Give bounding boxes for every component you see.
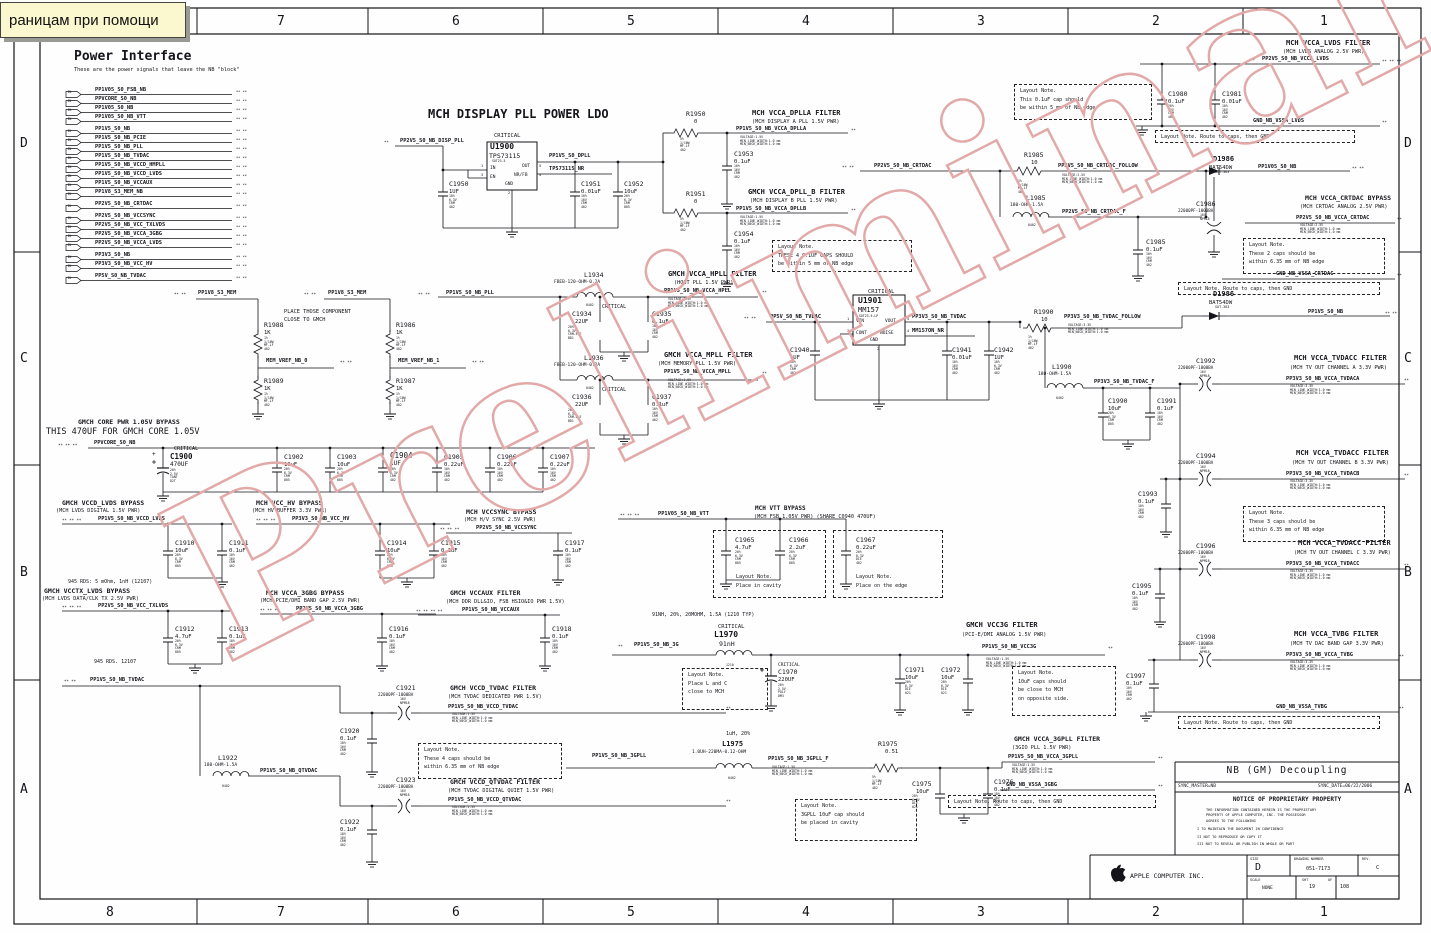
schematic-text: 16V NPM18 (400, 698, 410, 705)
schematic-text: THIS 470UF FOR GMCH CORE 1.05V (46, 428, 200, 438)
schematic-text: (HOST PLL 1.5V PWR) (674, 281, 733, 287)
schematic-text: C1950 (449, 181, 469, 188)
tooltip-overlay: раницам при помощи (0, 2, 186, 38)
sheet-refs: ** ** (236, 156, 247, 160)
schematic-text: PP3V3_S0_NB_VCCA_TVDACC (1286, 562, 1359, 568)
schematic-text: SOT23-5 (492, 160, 505, 164)
schematic-text: C1937 (652, 394, 672, 401)
power-in-tag: IN (68, 184, 72, 188)
schematic-text: C1934 (572, 311, 592, 318)
schematic-text: L1936 (584, 355, 604, 362)
power-net-label: PP2V5_S0_NB_CRTDAC (95, 202, 152, 208)
schematic-text: 20% 10V CRM 402 (1168, 105, 1174, 119)
schematic-text: MCH VCCA_CRTDAC BYPASS (1305, 195, 1391, 202)
schematic-text: 10% 16V CRM 402 (652, 325, 658, 339)
schematic-text: GMCH VCCD_LVDS BYPASS (62, 500, 144, 507)
schematic-text: 20% 6.3V CRM 805 (175, 554, 183, 568)
schematic-text: CRITICAL (868, 289, 895, 295)
schematic-text: TPS73115_NR (549, 167, 584, 173)
schematic-text: ** (1397, 218, 1402, 222)
schematic-text: ** ** ** (620, 514, 639, 518)
zone-col-label: 6 (452, 905, 460, 920)
schematic-text: U1901 (858, 297, 882, 306)
schematic-text: 0 (694, 199, 697, 205)
schematic-text: 5% 1/16W MF-LF 402 (680, 218, 690, 232)
schematic-text: ** (1250, 59, 1255, 63)
zone-col-label: 4 (802, 14, 810, 29)
layout-note: Layout Note. Route to caps, then GND (1178, 716, 1380, 729)
schematic-text: VOLTAGE:3.3V MIN_LINE_WIDTH:1.0 mm MIN_N… (1290, 661, 1330, 672)
schematic-text: 10% 16V CRM 402 (340, 833, 346, 847)
schematic-text: C1990 (1108, 398, 1128, 405)
layout-note: Layout Note.THESE 4 0.1UF CAPS SHOULDbe … (772, 240, 912, 272)
schematic-text: PP2V5_S0_NB_VCC_TXLVDS (98, 604, 168, 610)
schematic-text: VOLTAGE:1.5V MIN_LINE_WIDTH:1.0 mm MIN_N… (1012, 764, 1052, 775)
schematic-text: ** (1158, 757, 1163, 761)
schematic-text: 0 (694, 119, 697, 125)
schematic-text: C1953 (734, 151, 754, 158)
schematic-text: PP1V5_S0_NB_VCCD_QTVDAC (448, 798, 521, 804)
schematic-text: R1951 (686, 191, 706, 198)
schematic-text: L1922 (218, 755, 238, 762)
schematic-text: C1954 (734, 231, 754, 238)
schematic-text: VOLTAGE:3.3V MIN_LINE_WIDTH:1.0 mm MIN_N… (1290, 570, 1330, 581)
schematic-text: VOLTAGE:1.5V MIN_LINE_WIDTH:1.0 mm MIN_N… (740, 216, 780, 227)
schematic-text: VOLTAGE:2.5V MIN_LINE_WIDTH:1.0 mm MIN_N… (1062, 174, 1102, 185)
schematic-text: 91NH, 20%, 20MOHM, 1.5A (1210 TYP) (652, 613, 754, 619)
schematic-text: (MCH DISPLAY A PLL 1.5V PWR) (752, 120, 839, 126)
schematic-text: PP1V5_S0_NB_VCCA_DPLLB (736, 207, 806, 213)
size-value: D (1255, 862, 1261, 873)
schematic-text: C1917 (565, 540, 585, 547)
schematic-text: 2 (877, 347, 879, 351)
schematic-text: (MCH CRTDAC ANALOG 2.5V PWR) (1300, 205, 1387, 211)
schematic-text: ** ** ** (1382, 60, 1401, 64)
schematic-text: 10% 16V CRM 402 (1146, 253, 1152, 267)
schematic-text: 1% 1/16W MF-LF 402 (1028, 336, 1038, 350)
schematic-text: 10% 16V CRM 402 (734, 165, 740, 179)
schematic-text: VOLTAGE:1.5V MIN_LINE_WIDTH:1.0 mm MIN_N… (452, 713, 492, 724)
rev-label: REV. (1362, 857, 1370, 861)
schematic-text: PP2V5_S0_NB_VCCA_CRTDAC (1296, 216, 1369, 222)
power-net-label: PP2V5_S0_NB_VCC_TXLVDS (95, 223, 165, 229)
notice-line: PROPERTY OF APPLE COMPUTER, INC. THE POS… (1206, 813, 1316, 818)
schematic-text: C1907 (550, 454, 570, 461)
schematic-text: VIN (856, 319, 864, 324)
zone-row-label: A (1404, 782, 1412, 797)
power-net-label: PP1V05_S0_NB (95, 106, 133, 112)
schematic-text: 20% 6.3V CRM 805 (284, 468, 292, 482)
schematic-text: (MCH LVDS DATA/CLK TX 2.5V PWR) (42, 597, 139, 603)
schematic-text: FBEB-120-OHM-0.2A (554, 280, 600, 285)
schematic-text: L1934 (584, 272, 604, 279)
schematic-text: GMCH VCCA_DPLL_B FILTER (748, 189, 845, 197)
power-net-label: PP3V3_S0_NB (95, 253, 130, 259)
schematic-text: PP2V5_S0_NB_CRTDAC_FOLLOW (1058, 164, 1138, 170)
layout-note (833, 530, 943, 598)
layout-note (713, 530, 826, 598)
schematic-text: PP1V5_S0_NB_VCCA_HPLL (664, 289, 731, 295)
schematic-text: VOLTAGE:1.5V MIN_LINE_WIDTH:1.0 mm MIN_N… (668, 379, 708, 390)
sheet-refs: ** ** (236, 264, 247, 268)
schematic-text: PLACE THOSE COMPONENT (284, 310, 351, 316)
schematic-text: (MCH MEMORY PLL 1.5V PWR) (658, 362, 736, 368)
schematic-text: 16V NPM18 (1200, 647, 1210, 654)
schematic-text: C1970 (778, 669, 798, 676)
power-in-tag: IN (68, 139, 72, 143)
zone-col-label: 5 (627, 14, 635, 29)
schematic-text: C1942 (994, 347, 1014, 354)
power-net-label: PP1V5_S0_NB_TVDAC (95, 154, 149, 160)
schematic-text: 180-OHM-1.5A (204, 763, 237, 768)
schematic-text: 22000PF-1000BA (1178, 366, 1213, 371)
schematic-text: 16V NPM18 (1200, 371, 1210, 378)
schematic-text: C1910 (175, 540, 195, 547)
schematic-text: C1922 (340, 819, 360, 826)
schematic-text: C1902 (284, 454, 304, 461)
schematic-text: (MCH TVDAC DIGITAL QUIET 1.5V PWR) (448, 789, 554, 795)
power-in-tag: IN (68, 175, 72, 179)
schematic-text: ** ** (1352, 167, 1364, 171)
power-in-tag: IN (68, 109, 72, 113)
schematic-text: ** ** ** (256, 519, 275, 523)
schematic-text: GMCH VCCA_HPLL FILTER (668, 271, 757, 279)
schematic-text: C1912 (175, 626, 195, 633)
schematic-text: ** ** (340, 361, 352, 365)
schematic-text: R1988 (264, 322, 284, 329)
schematic-text: 1uH, 20% (726, 732, 750, 738)
zone-col-label: 2 (1152, 905, 1160, 920)
layout-note: Layout Note.These 4 caps should bewithin… (418, 743, 562, 779)
schematic-text: 16V NPM18 (1200, 466, 1210, 473)
power-in-tag: IN (68, 217, 72, 221)
schematic-text: NR/FB (514, 173, 528, 178)
schematic-text: ** (1399, 655, 1404, 659)
schematic-text: CLOSE TO GMCH (284, 318, 325, 324)
schematic-text: ** ** (472, 361, 484, 365)
schematic-text: (3GIO PLL 1.5V PWR) (1012, 746, 1071, 752)
schematic-text: FBEB-120-OHM-0.2A (554, 363, 600, 368)
schematic-text: 1% 1/16W MF-LF 402 (396, 337, 406, 351)
schematic-text: 180-OHM-1.5A (1038, 372, 1071, 377)
schematic-text: 0402 (222, 785, 230, 789)
schematic-text: (MCH HV BUFFER 3.3V PWR) (252, 509, 327, 515)
schematic-text: ** (1404, 474, 1409, 478)
layout-note: Layout Note.These 2 caps should bewithin… (1243, 238, 1385, 274)
sheet-refs: ** ** (236, 108, 247, 112)
schematic-text: 10% 16V CRM 402 (389, 640, 395, 654)
power-net-label: PP3V3_S0_NB_VCC_HV (95, 262, 152, 268)
schematic-text: PP1V5_S0_NB_3GPLL_F (768, 757, 829, 763)
schematic-text: C1985 (1146, 239, 1166, 246)
schematic-text: Power Interface (74, 50, 191, 65)
schematic-text: PP2V5_S0_NB_DISP_PLL (400, 139, 464, 145)
schematic-text: GND_NB_VSSA_LVDS (1253, 119, 1304, 125)
schematic-text: 10% 16V CRM 402 (340, 742, 346, 756)
power-in-tag: IN (68, 235, 72, 239)
schematic-text: ** ** ** (62, 519, 81, 523)
schematic-text: U1900 (490, 143, 514, 152)
schematic-text: (MCH TVDAC DEDICATED PWR 1.5V) (448, 695, 542, 701)
power-net-label: PP1V05_S0_NB_VTT (95, 115, 146, 121)
layout-note: Layout Note. Route to caps, then GND (1178, 282, 1380, 295)
schematic-text: GMCH VCCTX_LVDS BYPASS (44, 588, 130, 595)
layout-note: Layout Note.Place L and Cclose to MCH (682, 668, 768, 710)
schematic-text: VOLTAGE:1.5V MIN_LINE_WIDTH:1.0 mm MIN_N… (452, 806, 492, 817)
schematic-text: MCH VCCSYNC BYPASS (466, 509, 536, 516)
size-label: SIZE (1250, 857, 1258, 861)
schematic-text: L1990 (1052, 364, 1072, 371)
layout-note: Layout Note.This 0.1uF cap shouldbe with… (1014, 84, 1152, 120)
zone-row-label: D (1404, 136, 1412, 151)
schematic-text: 4 (539, 173, 541, 177)
schematic-text: PP1V5_S0_NB_3G (634, 643, 679, 649)
power-in-tag: IN (68, 91, 72, 95)
schematic-text: 1% 1/16W MF-LF 402 (396, 393, 406, 407)
schematic-text: C1916 (389, 626, 409, 633)
schematic-text: R1986 (396, 322, 416, 329)
sheet-refs: ** ** (236, 255, 247, 259)
layout-note: Layout Note.3GPLL 10uF cap shouldbe plac… (795, 799, 917, 841)
schematic-text: + (152, 452, 156, 459)
zone-col-label: 8 (106, 905, 114, 920)
schematic-text: ** (726, 800, 731, 804)
schematic-text: C1911 (229, 540, 249, 547)
power-net-label: PP1V8_S3_MEM_NB (95, 190, 143, 196)
schematic-text: ** ** (842, 166, 854, 170)
schematic-text: PP1V5_S0_NB (1308, 310, 1343, 316)
schematic-text: ** ** ** (440, 528, 459, 532)
schematic-text: C1975 (912, 781, 932, 788)
schematic-text: 10% 16V CRM 402 (581, 195, 587, 209)
schematic-text: C1997 (1126, 673, 1146, 680)
schematic-text: ** ** (304, 293, 316, 297)
scale-label: SCALE (1250, 878, 1261, 882)
zone-col-label: 1 (1320, 14, 1328, 29)
schematic-text: PP2V5_S0_NB_CRTDAC (874, 164, 931, 170)
schematic-text: 22000PF-1000BA (1178, 551, 1213, 556)
schematic-text: GMCH CORE PWR 1.05V BYPASS (78, 419, 180, 426)
apple-logo-icon (1106, 864, 1126, 888)
schematic-text: MCH VCCA_TVDACC FILTER (1294, 355, 1387, 363)
schematic-text: PP2V5_S0_NB_VCCA_LVDS (1262, 57, 1329, 63)
zone-col-label: 3 (977, 905, 985, 920)
schematic-text: (MCH H/V SYNC 2.5V PWR) (464, 518, 536, 524)
schematic-text: ** (762, 291, 767, 295)
schematic-text: C1918 (552, 626, 572, 633)
zone-col-label: 2 (1152, 14, 1160, 29)
schematic-text: ** ** (174, 293, 186, 297)
schematic-text: 945 RDS. 12107 (94, 660, 136, 666)
schematic-text: MEM_VREF_NB_1 (398, 359, 439, 365)
schematic-text: ** (851, 129, 856, 133)
schematic-text: ** (1108, 647, 1113, 651)
schematic-text: 10% 16V CRM 402 (1138, 505, 1144, 519)
sheet-refs: ** ** (236, 192, 247, 196)
schematic-text: 1 (481, 164, 483, 168)
power-in-tag: IN (68, 130, 72, 134)
schematic-text: 10% 16V CRM 402 (550, 468, 556, 482)
dwg-label: DRAWING NUMBER (1294, 857, 1324, 861)
schematic-text: 5% 1/10W MF-LF 402 (872, 776, 882, 790)
zone-col-label: 3 (977, 14, 985, 29)
schematic-text: SOT-363 (1215, 171, 1229, 175)
sheet-refs: ** ** (236, 183, 247, 187)
schematic-text: ** (1404, 564, 1409, 568)
schematic-text: 3 (481, 173, 483, 177)
schematic-text: PP3V3_S0_NB_TVDAC_F (1094, 380, 1155, 386)
schematic-text: ** ** ** ** (416, 610, 443, 614)
power-in-tag: IN (68, 244, 72, 248)
schematic-text: These are the power signals that leave t… (74, 68, 240, 74)
schematic-text: (MCH PCIE/DMI BAND GAP 2.5V PWR) (260, 599, 360, 605)
schematic-text: R1950 (686, 111, 706, 118)
scale-value: NONE (1262, 886, 1273, 891)
schematic-text: 1 (847, 317, 849, 321)
power-net-label: PP1V5_S0_NB_PCIE (95, 136, 146, 142)
power-net-label: PP2V5_S0_NB_VCCSYNC (95, 214, 156, 220)
schematic-text: PP1V5_S0_NB_VCCD_LVDS (98, 517, 165, 523)
schematic-text: MCH DISPLAY PLL POWER LDO (428, 108, 609, 121)
power-in-tag: IN (68, 256, 72, 260)
sheet-refs: ** ** (236, 147, 247, 151)
schematic-text: 20% 6.3V CRM 805 (175, 640, 183, 654)
schematic-text: VOLTAGE:3.3V MIN_LINE_WIDTH:1.0 mm MIN_N… (1068, 324, 1108, 335)
schematic-text: PP3V3_S0_NB_VCCA_TVBG (1286, 653, 1353, 659)
schematic-text: ** (1397, 274, 1402, 278)
schematic-text: 20% 6.3V CRM 805 (1108, 412, 1116, 426)
power-in-tag: IN (68, 277, 72, 281)
schematic-text: 22000PF-1000BA (1178, 642, 1213, 647)
sheet-refs: ** ** (236, 216, 247, 220)
schematic-text: MM157ON_NR (912, 329, 944, 335)
schematic-text: CRITICAL (494, 133, 521, 139)
schematic-text: 1% 1/16W MF-LF 402 (1018, 180, 1028, 194)
of-label: OF (1328, 878, 1332, 882)
schematic-text: 16V NPM18 (1200, 556, 1210, 563)
schematic-text: PP1V5_S0_DPLL (549, 154, 590, 160)
schematic-text: PP1V8_S3_MEM (198, 291, 236, 297)
schematic-text: C1995 (1132, 583, 1152, 590)
power-in-tag: IN (68, 100, 72, 104)
schematic-text: ** (1158, 785, 1163, 789)
schematic-text: 10% 16V CRM 402 (229, 640, 235, 654)
schematic-text: 16V NPM18 (400, 790, 410, 797)
schematic-text: VOLTAGE:3.3V MIN_LINE_WIDTH:1.0 mm MIN_N… (1290, 480, 1330, 491)
power-net-label: PP1V5_S0_NB_VCCD_LVDS (95, 172, 162, 178)
schematic-text: (MCH TV OUT CHANNEL B 3.3V PWR) (1292, 461, 1389, 467)
schematic-text: 1% 1/16W MF-LF 402 (264, 337, 274, 351)
schematic-text: PP2V5_S0_NB_CRTDAC_F (1062, 210, 1126, 216)
schematic-text: (MCH TV DAC BAND GAP 3.3V PWR) (1290, 642, 1384, 648)
power-net-label: PP2V5_S0_NB_VCCA_3GBG (95, 232, 162, 238)
schematic-text: ** ** ** (260, 609, 279, 613)
schematic-text: OUT (522, 164, 530, 169)
schematic-text: GMCH VCCAUX FILTER (450, 590, 520, 597)
schematic-text: L1975 (722, 741, 743, 749)
schematic-text: PP1V5_S0_NB_VCCA_MPLL (664, 370, 731, 376)
schematic-text: PP1V5_S0_NB_3GPLL (592, 754, 646, 760)
schematic-text: C1952 (624, 181, 644, 188)
schematic-text: 10% 16V CRM 402 (552, 640, 558, 654)
schematic-text: C1915 (441, 540, 461, 547)
schematic-text: VOLTAGE:1.5V MIN_LINE_WIDTH:1.0 mm MIN_N… (668, 298, 708, 309)
schematic-text: GMCH VCCD_TVDAC FILTER (450, 685, 536, 692)
tooltip-text: раницам при помощи (9, 12, 159, 29)
schematic-text: 10% 16V CRM 402 (565, 554, 571, 568)
schematic-text: GMCH VCCA_MPLL FILTER (664, 352, 753, 360)
schematic-text: 10% 16V CRM 402 (1132, 597, 1138, 611)
sheet-label: SHT (1302, 878, 1308, 882)
company-name: APPLE COMPUTER INC. (1130, 872, 1204, 880)
schematic-text: 10% 6.3V CRM 402 (790, 361, 798, 375)
zone-col-label: 6 (452, 14, 460, 29)
zone-col-label: 7 (277, 905, 285, 920)
schematic-text: PP1V05_S0_NB_VTT (658, 512, 709, 518)
schematic-text: MCH VCCA_TVBG FILTER (1294, 631, 1378, 639)
layout-note: Layout Note.10uF caps shouldbe close to … (1012, 666, 1116, 716)
schematic-text: VOLTAGE:3.3V MIN_LINE_WIDTH:1.0 mm MIN_N… (1290, 385, 1330, 396)
notice-line: III NOT TO REVEAL OR PUBLISH IN WHOLE OR… (1197, 842, 1316, 847)
power-net-label: PP1V5_S0_NB_PLL (95, 145, 143, 151)
schematic-text: 10% 6.3V CRM 402 (449, 195, 457, 209)
schematic-text: ** ** (64, 680, 76, 684)
schematic-text: 5% 1/16W MF-LF 402 (680, 138, 690, 152)
schematic-text: PP1V5_S0_NB_VCCA_3GPLL (1008, 755, 1078, 761)
schematic-text: C1913 (229, 626, 249, 633)
sheet-refs: ** ** (236, 204, 247, 208)
schematic-text: 16V NPM18 (1200, 214, 1210, 221)
sheet-refs: ** ** (236, 90, 247, 94)
schematic-text: CRITICAL (602, 305, 626, 311)
schematic-text: (MCH DISPLAY B PLL 1.5V PWR) (750, 199, 837, 205)
power-net-label: PPVCORE_S0_NB (95, 97, 136, 103)
schematic-text: ** (1382, 121, 1387, 125)
schematic-text: 22000PF-1000BA (378, 693, 413, 698)
schematic-text: R1985 (1024, 152, 1044, 159)
schematic-text: MCH VTT BYPASS (755, 506, 806, 513)
schematic-text: 20% 6.3V CRM 805 (387, 554, 395, 568)
schematic-text: GND_NB_VSSA_3GBG (1006, 783, 1057, 789)
dwg-number: 051-7173 (1306, 866, 1330, 872)
schematic-text: 22UF (575, 319, 588, 325)
schematic-text: GMCH VCCA_3GPLL FILTER (1014, 736, 1100, 743)
zone-col-label: 1 (1320, 905, 1328, 920)
schematic-text: 2 (508, 191, 510, 195)
schematic-text: C1914 (387, 540, 407, 547)
schematic-text: 20% 2.5V POLY DM3 (778, 684, 786, 698)
schematic-text: (MCH LVDS DIGITAL 1.5V PWR) (56, 509, 140, 515)
power-in-tag: IN (68, 205, 72, 209)
sheet-refs: ** ** (236, 138, 247, 142)
schematic-text: C1906 (497, 454, 517, 461)
schematic-text: 10% 16V CRM 402 (1126, 687, 1132, 701)
sheet-refs: ** ** (236, 129, 247, 133)
schematic-text: R1989 (264, 378, 284, 385)
schematic-text: 180-OHM-1.5A (1010, 203, 1043, 208)
schematic-text: PP1V05_S0_NB (1258, 165, 1296, 171)
schematic-text: ** ** ** (58, 444, 77, 448)
schematic-text: (PCI-E/DMI ANALOG 1.5V PWR) (962, 633, 1046, 639)
power-net-label: PP1V5_S0_NB_VCCD_HMPLL (95, 163, 165, 169)
layout-note: Layout Note. Route to caps, then GND (1155, 130, 1355, 143)
schematic-text: ** (851, 209, 856, 213)
schematic-text: ** (1399, 707, 1404, 711)
schematic-text: 945 RDS: 5 mOhm, 1nH (12107) (68, 580, 152, 586)
schematic-text: MCH VCCA_DPLLA FILTER (752, 110, 841, 118)
schematic-text: 0402 (1028, 224, 1036, 228)
schematic-text: 91nH (719, 641, 735, 648)
